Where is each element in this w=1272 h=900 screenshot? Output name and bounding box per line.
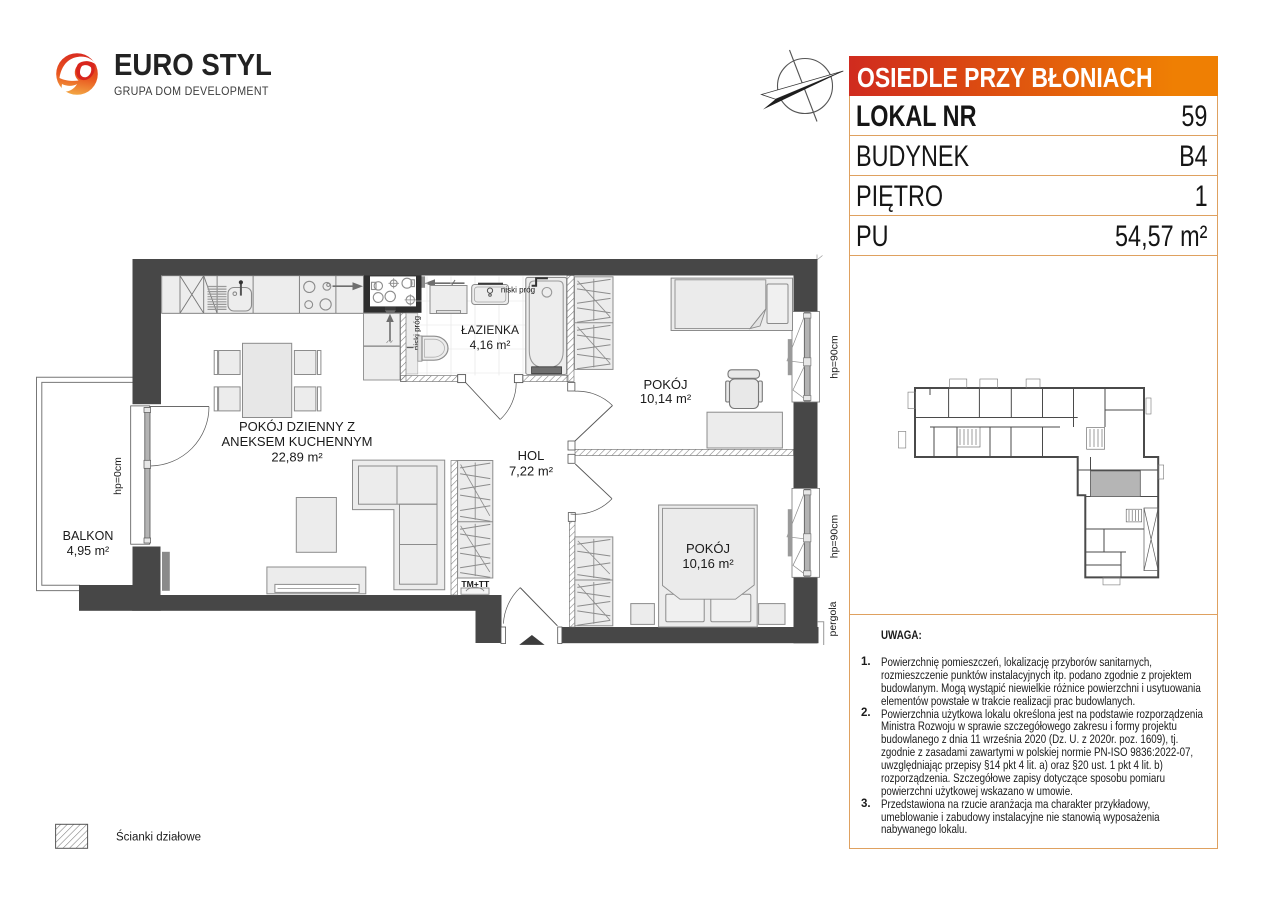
- svg-text:BALKON: BALKON: [63, 529, 114, 543]
- svg-text:ŁAZIENKA: ŁAZIENKA: [461, 323, 519, 337]
- svg-text:hp=90cm: hp=90cm: [829, 335, 841, 379]
- svg-text:10,16 m²: 10,16 m²: [682, 556, 734, 571]
- svg-text:ANEKSEM KUCHENNYM: ANEKSEM KUCHENNYM: [222, 434, 373, 449]
- svg-text:Ścianki działowe: Ścianki działowe: [116, 831, 201, 844]
- svg-text:POKÓJ DZIENNY Z: POKÓJ DZIENNY Z: [239, 419, 355, 434]
- svg-text:hp=90cm: hp=90cm: [829, 515, 841, 559]
- svg-text:22,89 m²: 22,89 m²: [271, 450, 323, 465]
- svg-text:4,95 m²: 4,95 m²: [67, 544, 109, 558]
- svg-text:pergola: pergola: [827, 601, 839, 636]
- svg-text:7,22 m²: 7,22 m²: [509, 464, 554, 479]
- svg-text:niski próg: niski próg: [501, 285, 535, 294]
- svg-text:POKÓJ: POKÓJ: [643, 377, 687, 392]
- svg-text:10,14 m²: 10,14 m²: [640, 391, 692, 406]
- svg-text:4,16 m²: 4,16 m²: [470, 338, 511, 352]
- svg-text:HOL: HOL: [518, 448, 545, 463]
- svg-text:POKÓJ: POKÓJ: [686, 541, 730, 556]
- svg-text:hp=0cm: hp=0cm: [112, 457, 124, 495]
